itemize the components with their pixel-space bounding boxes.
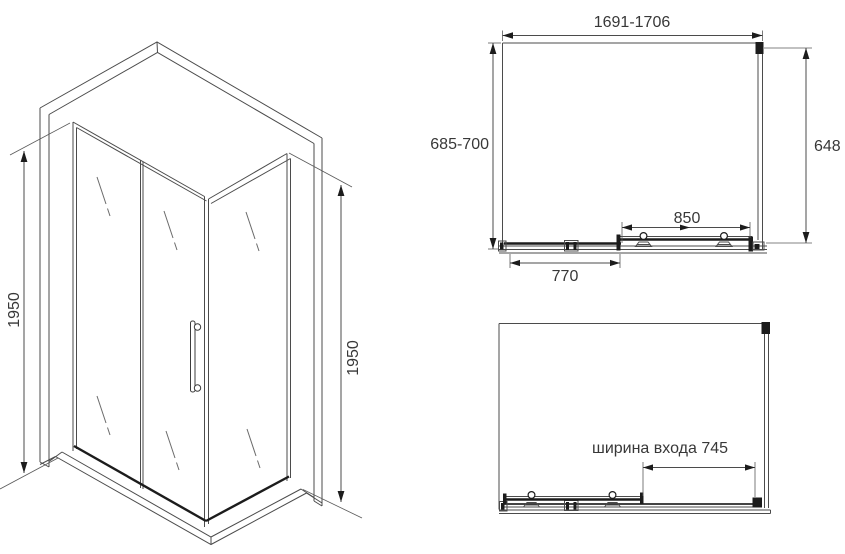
height-left-label: 1950 [6,292,23,328]
glass-reflection-marks [97,177,260,470]
dimension-height-left: 1950 [0,123,70,489]
side-panel-label: 648 [814,138,841,155]
open-outline [499,322,770,510]
dimension-side-panel: 648 [764,48,841,243]
dimension-height-right: 1950 [289,153,362,518]
dimension-overall-depth: 685-700 [430,43,501,249]
technical-drawing-page: 1950 1950 [0,0,845,554]
glass-frame [73,122,291,527]
door-handle [191,321,201,392]
entry-width-label: ширина входа 745 [592,440,728,457]
bottom-rail-and-tray [40,446,322,545]
track-assembly [499,233,768,253]
isometric-view: 1950 1950 [0,42,362,545]
wall-profile-top-open [762,322,771,334]
overall-width-label: 1691-1706 [594,14,671,31]
plan-view-closed: 1691-1706 685-700 648 [430,14,841,285]
dimension-entry-width: ширина входа 745 [592,440,755,497]
overall-depth-label: 685-700 [430,136,489,153]
fixed-panel-label: 770 [552,268,579,285]
door-width-label: 850 [674,210,701,227]
height-right-label: 1950 [345,340,362,376]
wall-profile-top [756,42,764,54]
door-stop-bracket [753,498,763,508]
dimension-fixed-panel: 770 [510,254,620,285]
wall-panels [40,42,322,506]
plan-outline [503,42,764,249]
shower-enclosure-drawing: 1950 1950 [0,0,845,554]
dimension-overall-width: 1691-1706 [503,14,763,41]
plan-view-open: ширина входа 745 [499,322,771,514]
open-track-assembly [499,492,771,514]
